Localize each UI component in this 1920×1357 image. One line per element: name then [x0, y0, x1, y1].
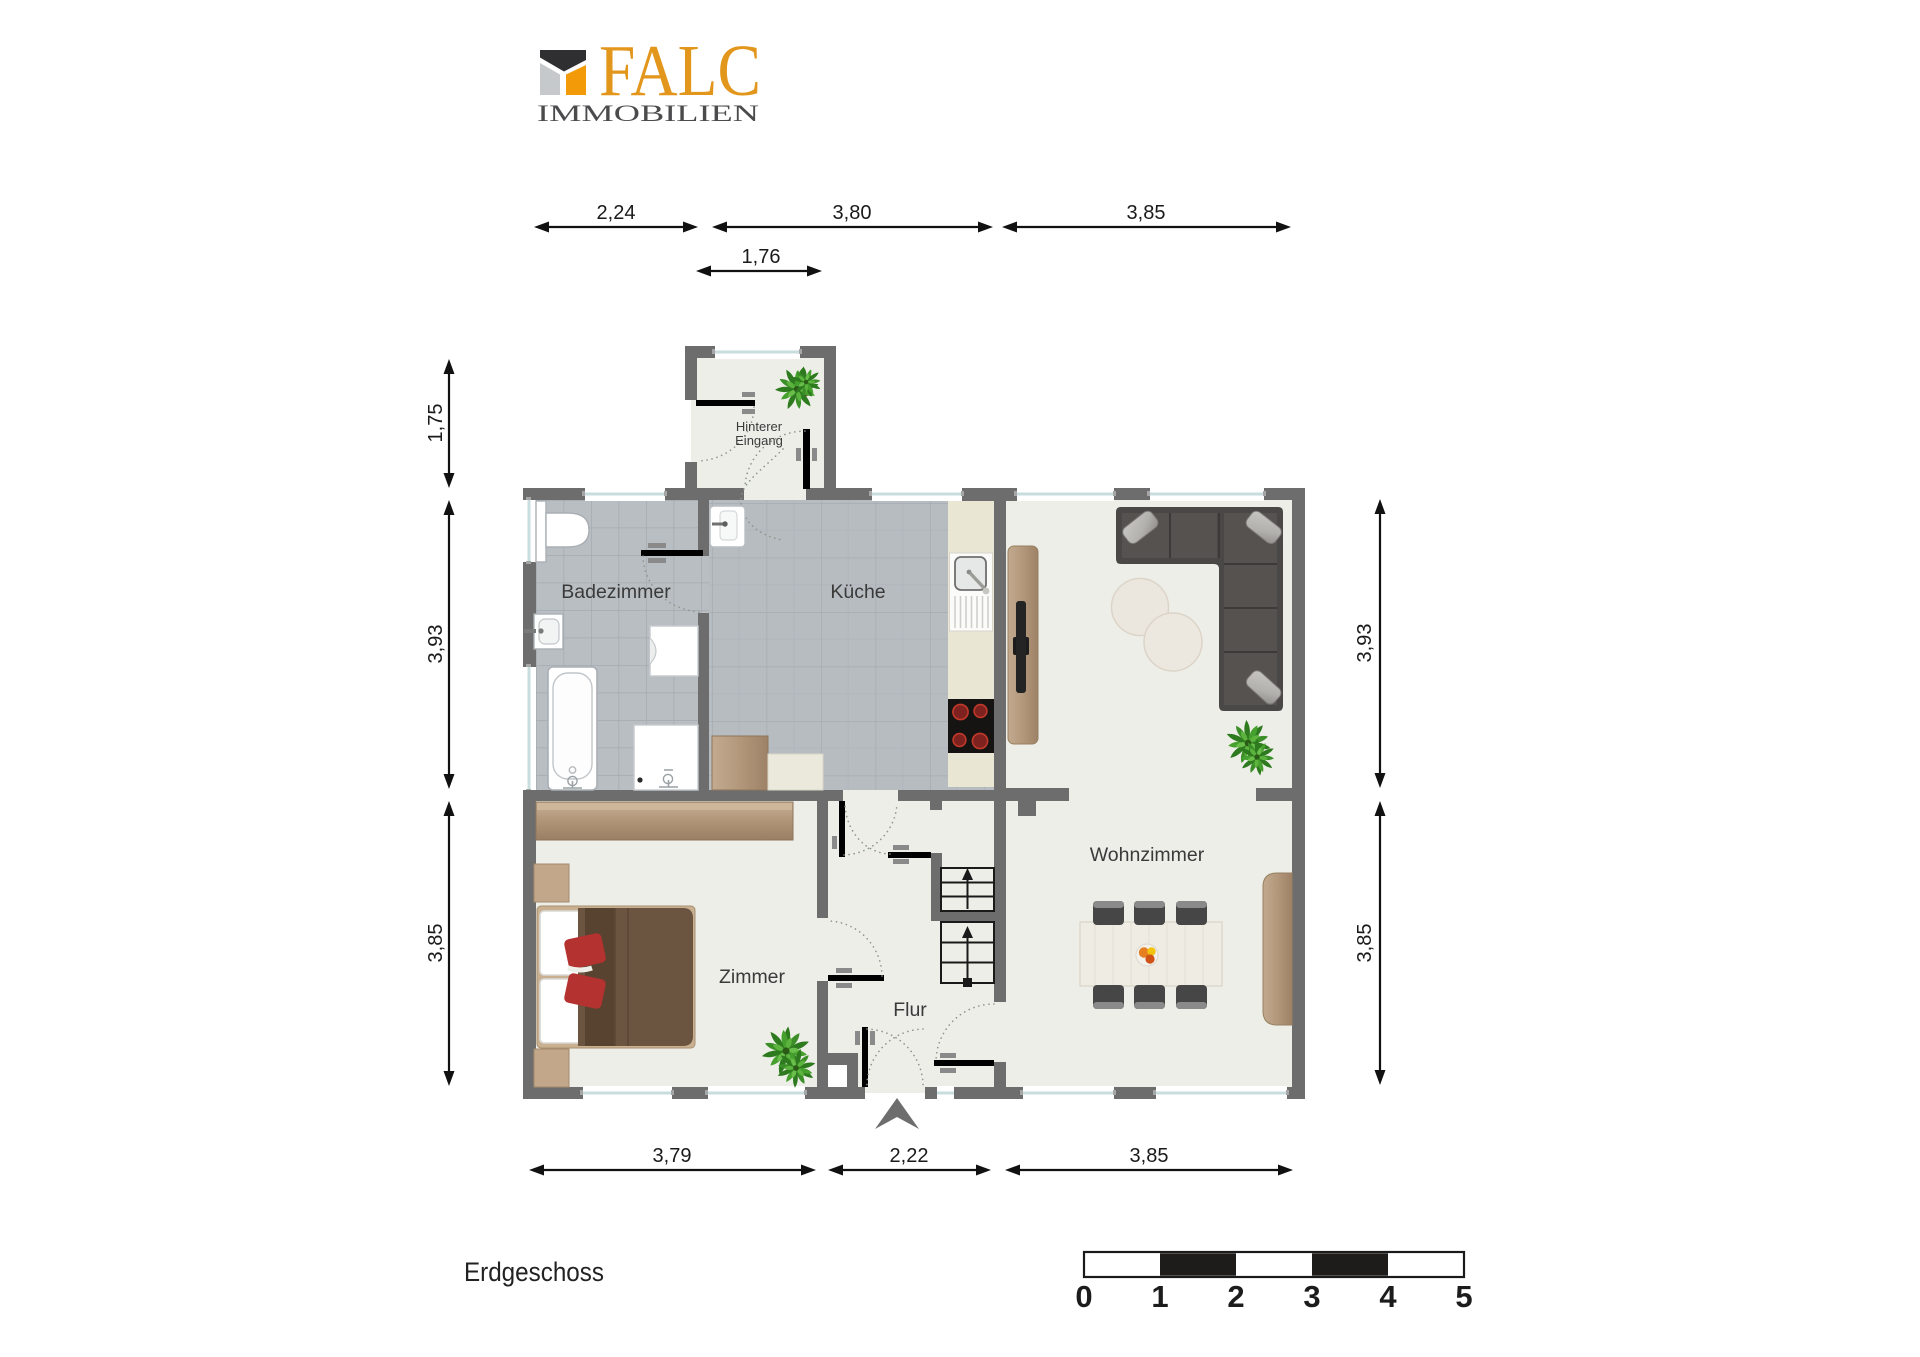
svg-text:4: 4 — [1379, 1279, 1397, 1314]
svg-text:Erdgeschoss: Erdgeschoss — [464, 1257, 604, 1287]
svg-text:Flur: Flur — [893, 999, 927, 1021]
svg-text:3,85: 3,85 — [1354, 924, 1376, 963]
svg-text:3,85: 3,85 — [1130, 1145, 1169, 1167]
svg-text:2,22: 2,22 — [890, 1145, 929, 1167]
svg-text:5: 5 — [1455, 1279, 1472, 1314]
svg-text:0: 0 — [1075, 1279, 1092, 1314]
svg-text:Badezimmer: Badezimmer — [561, 581, 671, 603]
svg-text:Eingang: Eingang — [735, 433, 783, 448]
svg-text:Hinterer: Hinterer — [736, 419, 783, 434]
svg-text:IMMOBILIEN: IMMOBILIEN — [537, 101, 760, 126]
svg-text:1: 1 — [1151, 1279, 1168, 1314]
svg-text:1,76: 1,76 — [742, 246, 781, 268]
svg-text:2: 2 — [1227, 1279, 1244, 1314]
svg-text:3: 3 — [1303, 1279, 1320, 1314]
svg-text:Küche: Küche — [830, 581, 885, 603]
svg-text:3,93: 3,93 — [1354, 624, 1376, 663]
svg-text:3,85: 3,85 — [1127, 202, 1166, 224]
svg-text:Zimmer: Zimmer — [719, 966, 786, 988]
svg-text:1,75: 1,75 — [425, 404, 447, 443]
svg-text:3,79: 3,79 — [653, 1145, 692, 1167]
svg-text:Wohnzimmer: Wohnzimmer — [1090, 844, 1205, 866]
svg-text:3,80: 3,80 — [833, 202, 872, 224]
svg-text:3,85: 3,85 — [425, 924, 447, 963]
svg-text:2,24: 2,24 — [597, 202, 636, 224]
svg-text:3,93: 3,93 — [425, 625, 447, 664]
svg-text:FALC: FALC — [599, 30, 761, 111]
